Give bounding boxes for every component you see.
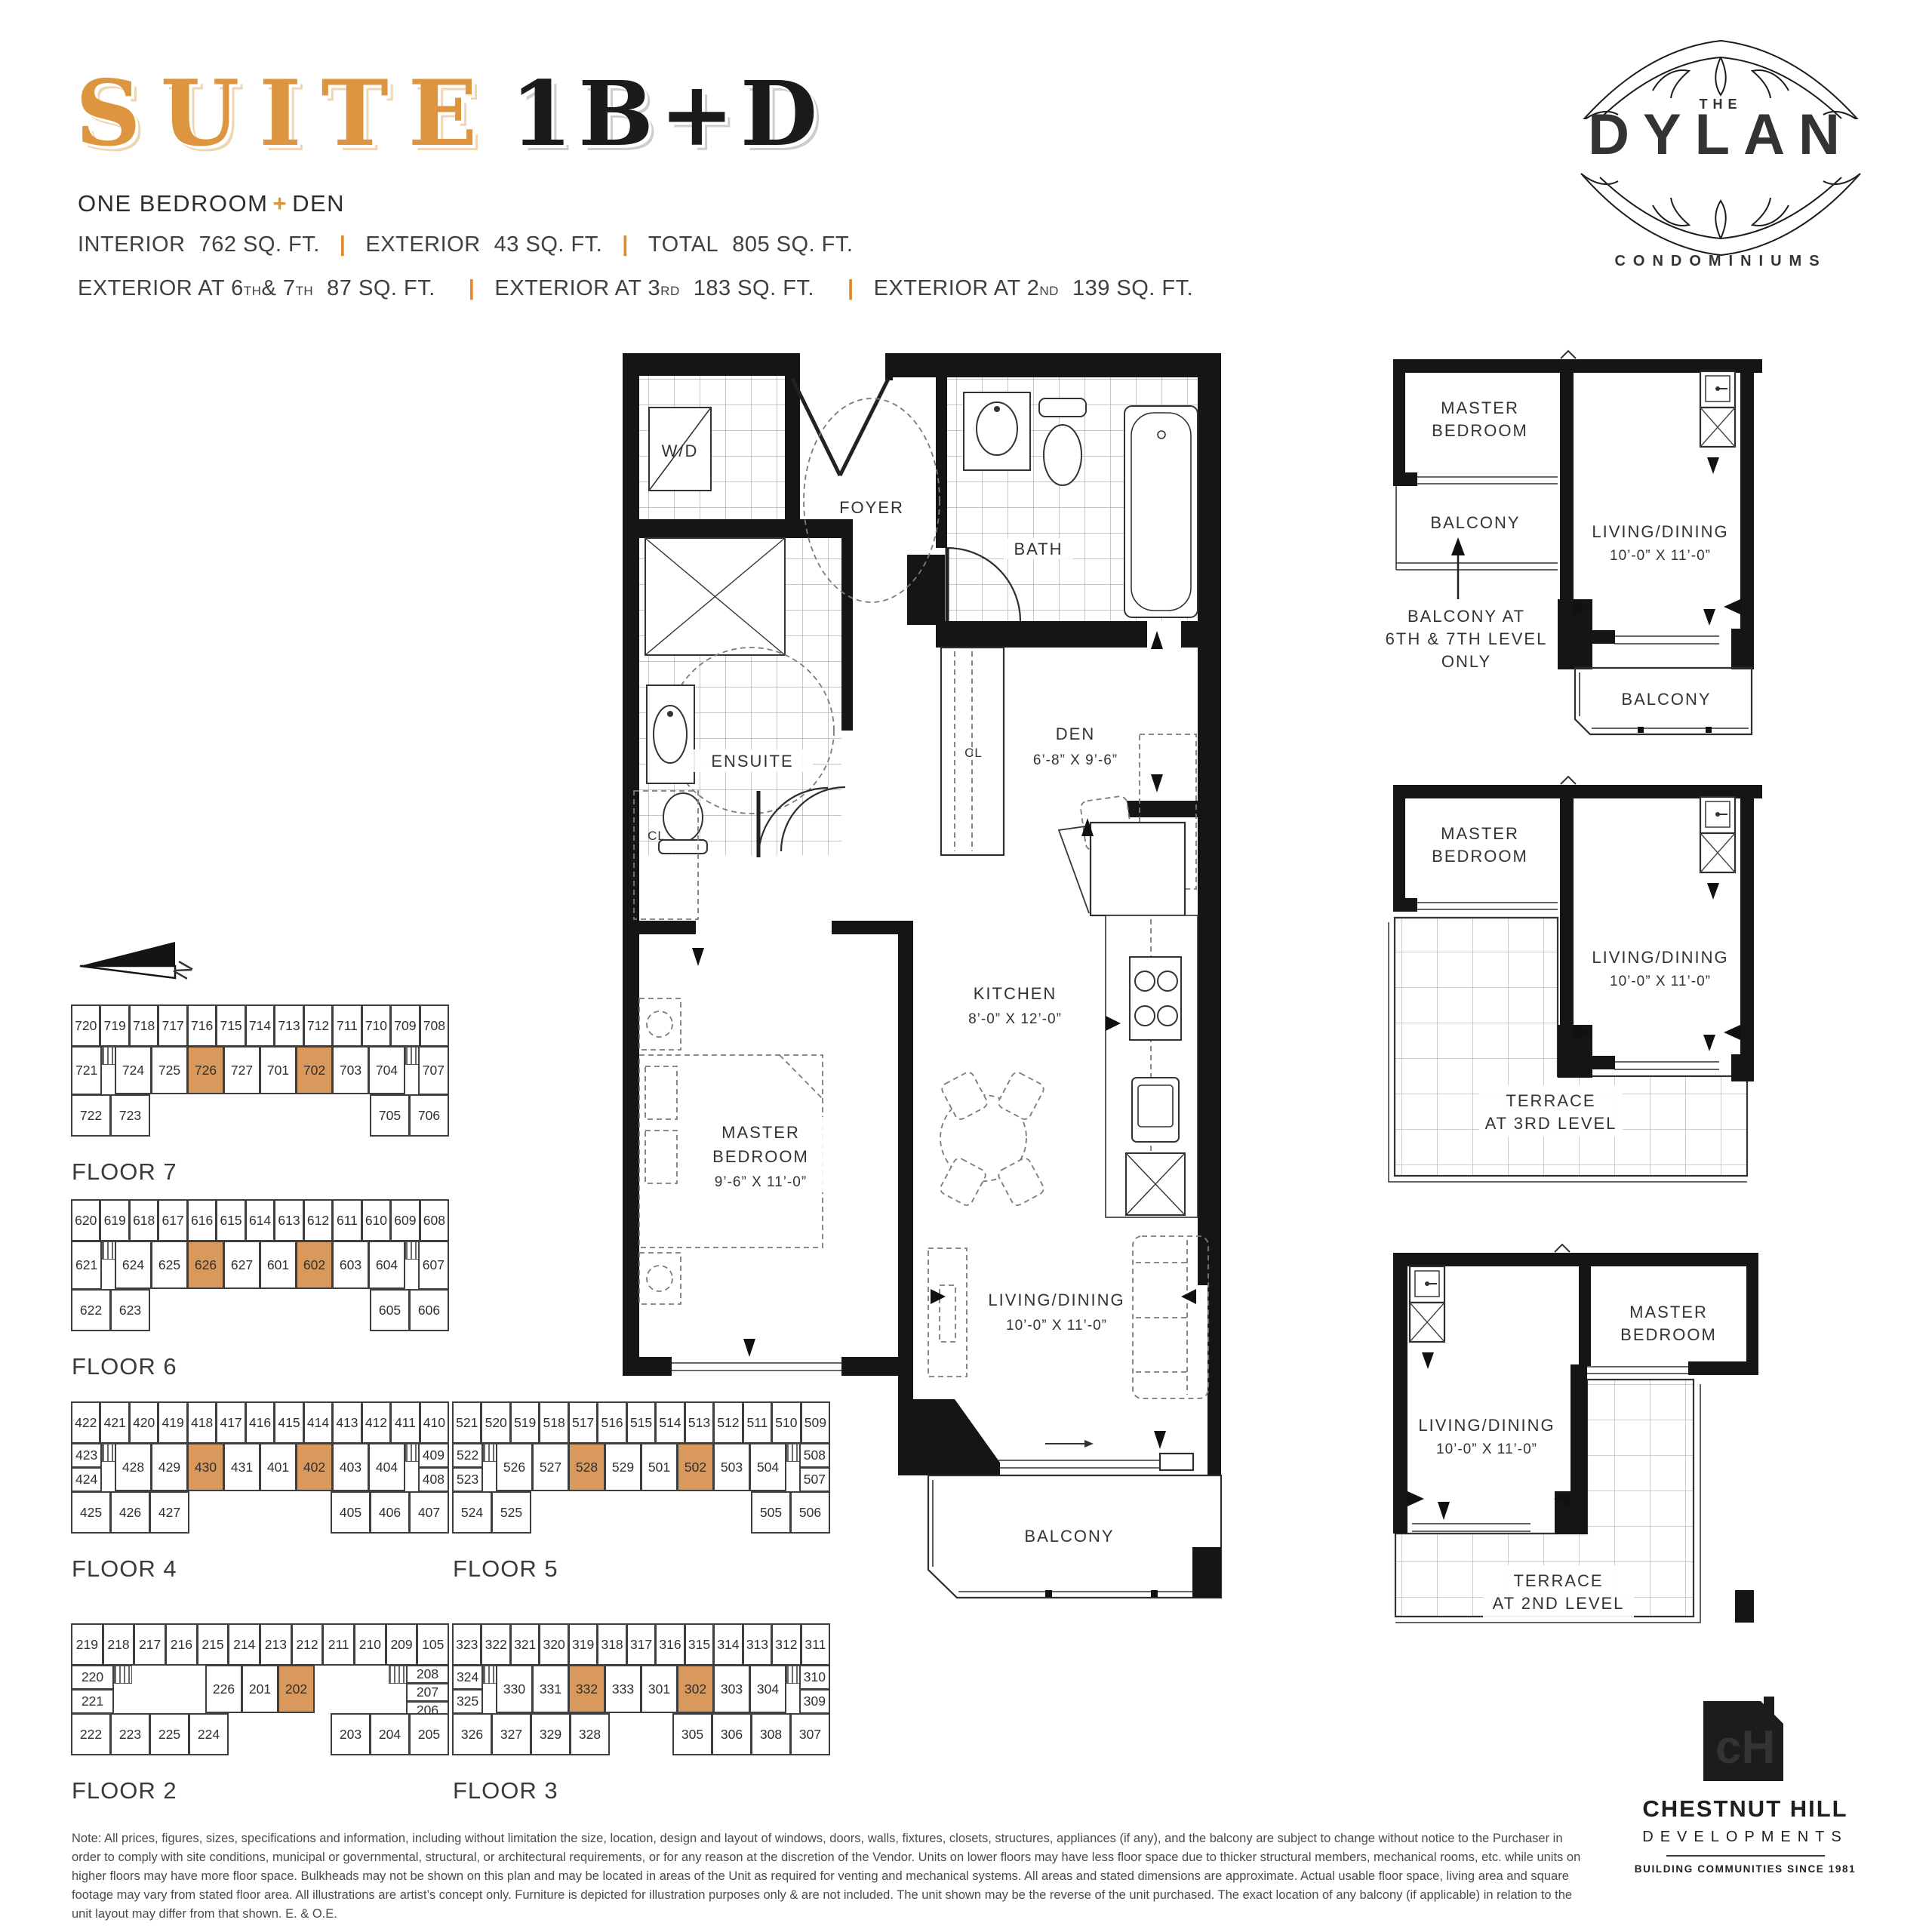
unit-315: 315 [685,1623,714,1666]
sup: RD [660,284,680,299]
chestnut-monogram-text: cH [1715,1721,1775,1774]
unit-506: 506 [790,1491,830,1534]
unit-516: 516 [597,1401,626,1444]
room-label-master-2: BEDROOM [712,1147,809,1166]
interior-value: 762 SQ. FT. [199,232,320,257]
unit-224: 224 [189,1713,229,1755]
unit-709: 709 [390,1004,420,1047]
unit-618: 618 [129,1199,158,1241]
subtitle-text-b: DEN [292,190,345,217]
unit-308: 308 [751,1713,791,1755]
unit-409: 409 [418,1443,449,1468]
unit-622: 622 [71,1289,111,1331]
unit-314: 314 [713,1623,743,1666]
unit-312: 312 [771,1623,801,1666]
unit-333: 333 [605,1665,641,1713]
v1-note-1: BALCONY AT [1407,607,1525,626]
unit-519: 519 [510,1401,540,1444]
unit-329: 329 [531,1713,571,1755]
dylan-name: DYLAN [1588,103,1854,167]
unit-508: 508 [799,1443,830,1468]
unit-603: 603 [332,1241,369,1289]
unit-303: 303 [713,1665,750,1713]
chestnut-sub: DEVELOPMENTS [1615,1829,1875,1846]
v1-note-3: ONLY [1441,652,1491,671]
room-label-foyer: FOYER [839,498,904,517]
subtitle-text-a: ONE BEDROOM [78,190,268,217]
v3-living: LIVING/DINING [1418,1416,1555,1435]
room-dims-kitchen: 8’-0” X 12’-0” [968,1011,1062,1027]
unit-621: 621 [71,1241,102,1290]
unit-304: 304 [749,1665,786,1713]
unit-704: 704 [368,1046,405,1094]
variant-plan-2nd: MASTER BEDROOM LIVING/DINING 10’-0” X 11… [1366,1242,1777,1665]
subtitle-plus: + [268,190,292,217]
exterior-value: 43 SQ. FT. [494,232,603,257]
unit-410: 410 [420,1401,449,1444]
unit-325: 325 [452,1689,483,1714]
unit-431: 431 [223,1443,260,1491]
stair-hatch [483,1444,497,1462]
room-label-cl-den: CL [964,746,983,760]
floor-key-plan-7: 7207197187177167157147137127117107097087… [72,1005,449,1186]
v3-terrace-1: TERRACE [1513,1571,1603,1590]
stair-hatch [483,1666,497,1684]
variant-plan-6th-7th: MASTER BEDROOM BALCONY BALCONY AT 6TH & … [1366,349,1777,756]
dylan-sub: CONDOMINIUMS [1614,253,1826,268]
building-outline: 6206196186176166156146136126116106096086… [72,1200,449,1332]
unit-605: 605 [370,1289,410,1331]
unit-420: 420 [129,1401,158,1444]
unit-725: 725 [151,1046,188,1094]
unit-421: 421 [100,1401,129,1444]
unit-415: 415 [274,1401,303,1444]
unit-505: 505 [751,1491,791,1534]
room-dims-den: 6’-8” X 9’-6” [1033,752,1118,768]
stair-hatch [102,1241,115,1260]
unit-701: 701 [260,1046,297,1094]
unit-414: 414 [303,1401,333,1444]
unit-619: 619 [100,1199,129,1241]
unit-627: 627 [223,1241,260,1289]
building-outline: 3233223213203193183173163153143133123113… [453,1624,830,1756]
unit-221: 221 [71,1689,114,1714]
v3-terrace-2: AT 2ND LEVEL [1493,1594,1625,1613]
unit-507: 507 [799,1467,830,1492]
unit-215: 215 [197,1623,229,1666]
floor-label: FLOOR 7 [72,1158,449,1186]
unit-332: 332 [568,1665,605,1713]
chestnut-name: CHESTNUT HILL [1615,1795,1875,1823]
unit-512: 512 [713,1401,743,1444]
v1-note-2: 6TH & 7TH LEVEL [1386,629,1548,648]
unit-208: 208 [406,1665,449,1684]
chestnut-tagline: BUILDING COMMUNITIES SINCE 1981 [1615,1863,1875,1875]
chestnut-monogram-icon: cH [1703,1697,1788,1781]
building-outline: 7207197187177167157147137127117107097087… [72,1005,449,1137]
stair-hatch [405,1047,419,1065]
v2-terrace-1: TERRACE [1506,1091,1595,1110]
dylan-ornament: THE DYLAN CONDOMINIUMS [1540,30,1902,268]
stair-hatch [405,1241,419,1260]
suite-word: SUITE [75,60,497,167]
suite-subtitle: ONE BEDROOM+DEN [78,190,345,217]
unit-402: 402 [296,1443,333,1491]
v1-living: LIVING/DINING [1592,522,1728,541]
unit-713: 713 [274,1004,303,1047]
unit-526: 526 [496,1443,533,1491]
unit-610: 610 [361,1199,391,1241]
unit-328: 328 [570,1713,610,1755]
unit-219: 219 [71,1623,103,1666]
floor-key-plan-3: 3233223213203193183173163153143133123113… [453,1624,830,1804]
unit-710: 710 [361,1004,391,1047]
floor-label: FLOOR 5 [453,1555,830,1583]
unit-708: 708 [420,1004,449,1047]
floor-key-plan-2: 2192182172162152142132122112102091052202… [72,1624,449,1804]
unit-612: 612 [303,1199,333,1241]
room-label-master-1: MASTER [721,1123,800,1142]
floor-label: FLOOR 4 [72,1555,449,1583]
unit-406: 406 [370,1491,410,1534]
floor-key-plan-6: 6206196186176166156146136126116106096086… [72,1200,449,1380]
unit-407: 407 [409,1491,449,1534]
v1-master-2: BEDROOM [1432,421,1528,440]
suite-code: 1B+D [510,61,823,166]
room-label-ensuite: ENSUITE [711,752,793,771]
area-stats-line1: INTERIOR 762 SQ. FT. | EXTERIOR 43 SQ. F… [78,232,853,257]
unit-210: 210 [354,1623,386,1666]
unit-720: 720 [71,1004,100,1047]
room-label-wd: W/D [662,441,699,460]
unit-423: 423 [71,1443,102,1468]
unit-321: 321 [510,1623,540,1666]
ext3-label: EXTERIOR AT 3 [494,276,660,301]
v1-balcony-lower: BALCONY [1621,690,1711,709]
room-label-bath: BATH [1014,540,1063,558]
unit-225: 225 [149,1713,189,1755]
unit-520: 520 [481,1401,510,1444]
unit-716: 716 [187,1004,217,1047]
unit-411: 411 [390,1401,420,1444]
unit-416: 416 [245,1401,275,1444]
unit-319: 319 [568,1623,598,1666]
interior-label: INTERIOR [78,232,186,257]
unit-611: 611 [332,1199,361,1241]
v1-living-dims: 10’-0” X 11’-0” [1610,548,1711,564]
building-outline: 5215205195185175165155145135125115105095… [453,1402,830,1534]
separator: | [340,232,346,257]
ext67-value: 87 SQ. FT. [327,276,435,301]
stair-hatch [786,1666,800,1684]
room-label-kitchen: KITCHEN [974,984,1057,1003]
unit-424: 424 [71,1467,102,1492]
unit-318: 318 [597,1623,626,1666]
unit-615: 615 [216,1199,245,1241]
unit-721: 721 [71,1046,102,1095]
unit-211: 211 [322,1623,355,1666]
unit-302: 302 [677,1665,714,1713]
unit-306: 306 [712,1713,752,1755]
unit-427: 427 [149,1491,189,1534]
unit-301: 301 [641,1665,678,1713]
unit-602: 602 [296,1241,333,1289]
unit-613: 613 [274,1199,303,1241]
chestnut-hill-logo: cH CHESTNUT HILL DEVELOPMENTS BUILDING C… [1615,1697,1875,1875]
unit-408: 408 [418,1467,449,1492]
unit-217: 217 [134,1623,166,1666]
unit-313: 313 [743,1623,772,1666]
unit-322: 322 [481,1623,510,1666]
unit-331: 331 [532,1665,569,1713]
unit-601: 601 [260,1241,297,1289]
exterior-label: EXTERIOR [365,232,480,257]
room-dims-living: 10’-0” X 11’-0” [1006,1318,1107,1334]
unit-503: 503 [713,1443,750,1491]
unit-203: 203 [331,1713,371,1755]
unit-413: 413 [332,1401,361,1444]
unit-212: 212 [291,1623,324,1666]
unit-513: 513 [685,1401,714,1444]
floor-label: FLOOR 6 [72,1353,449,1380]
unit-207: 207 [406,1683,449,1702]
unit-624: 624 [115,1241,152,1289]
v2-master-1: MASTER [1441,824,1519,843]
unit-715: 715 [216,1004,245,1047]
unit-514: 514 [655,1401,685,1444]
unit-419: 419 [158,1401,187,1444]
ext2-label: EXTERIOR AT 2 [874,276,1040,301]
stair-hatch [114,1666,132,1684]
unit-305: 305 [672,1713,712,1755]
floor-key-plan-5: 5215205195185175165155145135125115105095… [453,1402,830,1583]
unit-726: 726 [187,1046,224,1094]
floor-key-plan-4: 4224214204194184174164154144134124114104… [72,1402,449,1583]
unit-524: 524 [452,1491,492,1534]
unit-527: 527 [532,1443,569,1491]
unit-609: 609 [390,1199,420,1241]
unit-323: 323 [452,1623,481,1666]
separator: | [469,276,475,301]
area-stats-line2: EXTERIOR AT 6TH & 7TH 87 SQ. FT. | EXTER… [78,276,1207,301]
unit-723: 723 [110,1094,150,1137]
unit-509: 509 [801,1401,830,1444]
divider [1666,1855,1825,1857]
unit-218: 218 [103,1623,135,1666]
unit-518: 518 [539,1401,568,1444]
unit-425: 425 [71,1491,111,1534]
ext67-mid: & 7 [261,276,295,301]
unit-511: 511 [743,1401,772,1444]
room-label-living: LIVING/DINING [988,1291,1124,1309]
unit-422: 422 [71,1401,100,1444]
unit-718: 718 [129,1004,158,1047]
ext2-value: 139 SQ. FT. [1072,276,1193,301]
unit-608: 608 [420,1199,449,1241]
unit-712: 712 [303,1004,333,1047]
unit-522: 522 [452,1443,483,1468]
unit-216: 216 [165,1623,198,1666]
unit-220: 220 [71,1665,114,1690]
unit-403: 403 [332,1443,369,1491]
unit-528: 528 [568,1443,605,1491]
unit-607: 607 [418,1241,449,1290]
v2-terrace-2: AT 3RD LEVEL [1485,1114,1617,1133]
unit-714: 714 [245,1004,275,1047]
unit-324: 324 [452,1665,483,1690]
stair-hatch [786,1444,800,1462]
room-dims-master: 9’-6” X 11’-0” [715,1174,807,1190]
unit-523: 523 [452,1467,483,1492]
total-value: 805 SQ. FT. [732,232,853,257]
unit-105: 105 [417,1623,449,1666]
sup: ND [1039,284,1059,299]
unit-307: 307 [790,1713,830,1755]
v2-living-dims: 10’-0” X 11’-0” [1610,974,1711,989]
ext3-value: 183 SQ. FT. [694,276,814,301]
building-outline: 4224214204194184174164154144134124114104… [72,1402,449,1534]
stair-hatch [102,1047,115,1065]
unit-623: 623 [110,1289,150,1331]
unit-515: 515 [626,1401,656,1444]
unit-614: 614 [245,1199,275,1241]
north-arrow-icon: N [75,934,204,995]
building-outline: 2192182172162152142132122112102091052202… [72,1624,449,1756]
separator: | [848,276,854,301]
unit-521: 521 [452,1401,481,1444]
unit-428: 428 [115,1443,152,1491]
total-label: TOTAL [648,232,718,257]
unit-711: 711 [332,1004,361,1047]
unit-606: 606 [409,1289,449,1331]
unit-625: 625 [151,1241,188,1289]
unit-705: 705 [370,1094,410,1137]
unit-327: 327 [491,1713,531,1755]
unit-717: 717 [158,1004,187,1047]
separator: | [622,232,629,257]
page-title: SUITE1B+D [75,60,823,167]
v3-master-1: MASTER [1629,1303,1708,1321]
sup: TH [295,284,313,299]
unit-430: 430 [187,1443,224,1491]
unit-202: 202 [278,1665,315,1713]
unit-309: 309 [799,1689,830,1714]
unit-616: 616 [187,1199,217,1241]
unit-702: 702 [296,1046,333,1094]
room-label-cl-hall: CL [648,829,666,843]
unit-316: 316 [655,1623,685,1666]
unit-620: 620 [71,1199,100,1241]
unit-226: 226 [205,1665,242,1713]
unit-310: 310 [799,1665,830,1690]
unit-213: 213 [260,1623,292,1666]
unit-529: 529 [605,1443,641,1491]
unit-326: 326 [452,1713,492,1755]
disclaimer-note: Note: All prices, figures, sizes, specif… [72,1829,1589,1924]
unit-510: 510 [771,1401,801,1444]
unit-706: 706 [409,1094,449,1137]
unit-426: 426 [110,1491,150,1534]
unit-417: 417 [216,1401,245,1444]
v1-master-1: MASTER [1441,398,1519,417]
unit-209: 209 [386,1623,418,1666]
unit-724: 724 [115,1046,152,1094]
v2-master-2: BEDROOM [1432,847,1528,866]
unit-330: 330 [496,1665,533,1713]
unit-626: 626 [187,1241,224,1289]
unit-727: 727 [223,1046,260,1094]
unit-205: 205 [409,1713,449,1755]
unit-429: 429 [151,1443,188,1491]
dylan-logo: THE DYLAN CONDOMINIUMS [1540,30,1902,272]
unit-719: 719 [100,1004,129,1047]
stair-hatch [389,1666,407,1684]
unit-320: 320 [539,1623,568,1666]
v1-balcony-upper: BALCONY [1430,513,1520,532]
unit-311: 311 [801,1623,830,1666]
unit-405: 405 [331,1491,371,1534]
unit-201: 201 [241,1665,278,1713]
unit-502: 502 [677,1443,714,1491]
unit-617: 617 [158,1199,187,1241]
floor-label: FLOOR 2 [72,1777,449,1804]
unit-517: 517 [568,1401,598,1444]
stair-hatch [102,1444,115,1462]
unit-204: 204 [370,1713,410,1755]
room-label-den: DEN [1056,724,1095,743]
unit-401: 401 [260,1443,297,1491]
floor-label: FLOOR 3 [453,1777,830,1804]
unit-412: 412 [361,1401,391,1444]
unit-418: 418 [187,1401,217,1444]
sup: TH [244,284,262,299]
unit-317: 317 [626,1623,656,1666]
v3-living-dims: 10’-0” X 11’-0” [1436,1441,1537,1457]
unit-214: 214 [228,1623,260,1666]
unit-707: 707 [418,1046,449,1095]
unit-504: 504 [749,1443,786,1491]
unit-501: 501 [641,1443,678,1491]
unit-722: 722 [71,1094,111,1137]
stair-hatch [405,1444,419,1462]
unit-223: 223 [110,1713,150,1755]
room-label-balcony: BALCONY [1024,1527,1114,1546]
unit-525: 525 [491,1491,531,1534]
unit-604: 604 [368,1241,405,1289]
unit-222: 222 [71,1713,111,1755]
v3-master-2: BEDROOM [1620,1325,1717,1344]
variant-plan-3rd: MASTER BEDROOM LIVING/DINING 10’-0” X 11… [1366,774,1777,1186]
ext67-label: EXTERIOR AT 6 [78,276,244,301]
unit-404: 404 [368,1443,405,1491]
unit-703: 703 [332,1046,369,1094]
v2-living: LIVING/DINING [1592,948,1728,967]
